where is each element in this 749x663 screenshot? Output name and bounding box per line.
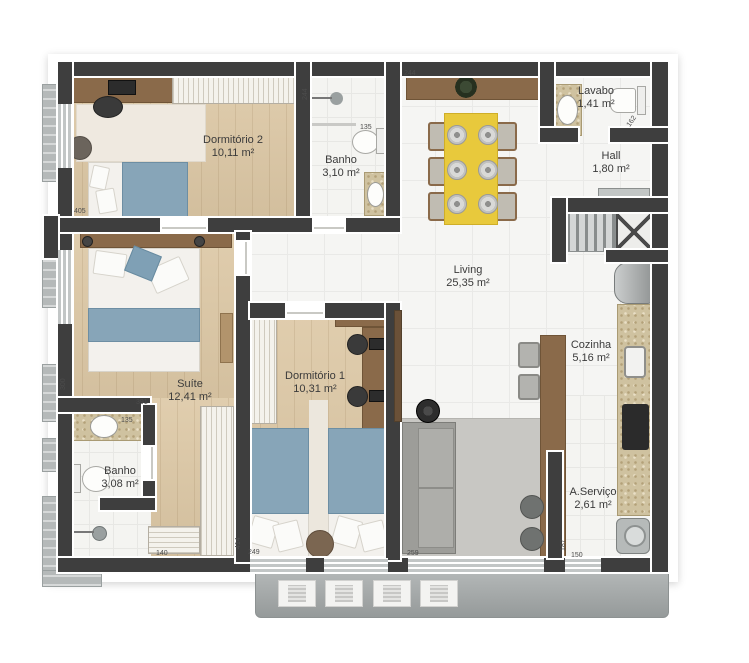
window-segment (408, 558, 544, 572)
pillow-icon (92, 250, 127, 278)
door-opening (236, 240, 250, 276)
bar-stool-icon (518, 374, 540, 400)
desk-chair-icon (93, 96, 123, 118)
wall-segment (100, 498, 155, 510)
plant-icon (455, 76, 477, 98)
balcony-window-icon (373, 580, 411, 607)
room-name: Dormitório 2 (203, 134, 263, 147)
dimension-label: 249 (248, 549, 260, 556)
dimension-label: 414 (235, 537, 242, 549)
side-table-icon (416, 399, 440, 423)
dimension-label: 244 (404, 70, 416, 77)
plate-icon (478, 194, 498, 214)
window-segment (250, 558, 306, 572)
bed-dorm1-right-blanket (328, 428, 394, 514)
dresser-suite (220, 313, 233, 363)
room-name: Suíte (168, 378, 211, 391)
room-area: 3,08 m² (101, 478, 138, 491)
kitchen-sink-icon (624, 346, 646, 378)
plate-icon (447, 194, 467, 214)
room-label-aservico: A.Serviço 2,61 m² (569, 486, 616, 512)
computer-icon (369, 338, 386, 350)
balcony-window-icon (278, 580, 316, 607)
bar-stool-icon (518, 342, 540, 368)
wall-segment (606, 250, 668, 262)
lamp-icon (194, 236, 205, 247)
closet-suite (200, 406, 234, 556)
window-segment (324, 558, 388, 572)
balcony-window-icon (420, 580, 458, 607)
dimension-label: 405 (74, 208, 86, 215)
room-area: 2,61 m² (569, 499, 616, 512)
sink-icon (557, 95, 578, 125)
dimension-label: 135 (360, 124, 372, 131)
room-label-lavabo: Lavabo 1,41 m² (577, 85, 614, 111)
entry-door-icon (598, 188, 650, 197)
headboard-suite (80, 232, 232, 248)
bed-dorm1-left-blanket (245, 428, 309, 514)
bed-suite-blanket (88, 308, 200, 342)
wall-segment (58, 218, 400, 232)
pillow-icon (95, 188, 118, 215)
computer-icon (369, 390, 386, 402)
elevator-shaft-icon (616, 212, 652, 252)
room-area: 25,35 m² (446, 277, 489, 290)
dimension-label: 300 (60, 378, 67, 390)
stool-icon (520, 527, 544, 551)
door-leaf (287, 312, 323, 314)
room-area: 10,11 m² (203, 147, 263, 160)
wall-segment (552, 198, 668, 212)
plate-icon (478, 125, 498, 145)
window-segment (58, 250, 72, 324)
computer-icon (108, 80, 136, 95)
room-label-banho-social: Banho 3,10 m² (322, 154, 359, 180)
room-label-banho-suite: Banho 3,08 m² (101, 465, 138, 491)
door-leaf (314, 227, 344, 229)
door-opening (312, 218, 346, 232)
room-label-hall: Hall 1,80 m² (592, 150, 629, 176)
door-leaf (245, 242, 247, 274)
tv-panel-icon (394, 310, 402, 422)
window-segment (565, 558, 601, 572)
room-area: 1,80 m² (592, 163, 629, 176)
room-name: A.Serviço (569, 486, 616, 499)
round-rug-icon (306, 530, 334, 558)
exterior-wall-stub (42, 570, 102, 587)
room-name: Cozinha (571, 339, 611, 352)
dimension-label: 150 (571, 552, 583, 559)
sink-icon (367, 182, 384, 207)
room-area: 1,41 m² (577, 98, 614, 111)
room-name: Banho (322, 154, 359, 167)
shower-arm (311, 97, 332, 99)
dimension-label: 391 (136, 399, 148, 406)
room-area: 3,10 m² (322, 167, 359, 180)
wall-segment (236, 232, 250, 562)
lamp-icon (82, 236, 93, 247)
room-name: Dormitório 1 (285, 370, 345, 383)
room-area: 5,16 m² (571, 352, 611, 365)
wall-pier (44, 216, 58, 258)
shower-arm (74, 531, 94, 533)
room-label-dormitorio-2: Dormitório 2 10,11 m² (203, 134, 263, 160)
washer-door-icon (624, 525, 646, 547)
dimension-label: 140 (156, 550, 168, 557)
wall-segment (386, 62, 400, 225)
stairs-icon (566, 212, 616, 252)
room-label-cozinha: Cozinha 5,16 m² (571, 339, 611, 365)
door-opening (160, 218, 208, 232)
desk-chair-icon (347, 386, 368, 407)
sofa-cushion-line (418, 487, 454, 489)
desk-chair-icon (347, 334, 368, 355)
room-area: 10,31 m² (285, 383, 345, 396)
toilet-tank (72, 464, 81, 493)
window-segment (58, 104, 72, 168)
room-label-living: Living 25,35 m² (446, 264, 489, 290)
plate-icon (447, 125, 467, 145)
shower-head-icon (92, 526, 107, 541)
room-label-suite: Suíte 12,41 m² (168, 378, 211, 404)
wall-segment (58, 62, 668, 76)
cooktop-icon (622, 404, 649, 450)
balcony-ledge (255, 572, 669, 618)
door-leaf (151, 447, 153, 479)
door-opening (285, 303, 325, 318)
plate-icon (447, 160, 467, 180)
dimension-label: 135 (121, 417, 133, 424)
fridge-icon (614, 262, 652, 304)
toilet-icon (352, 130, 379, 154)
sink-icon (90, 415, 118, 438)
dimension-label: 244 (302, 88, 309, 100)
wall-segment (540, 128, 578, 142)
dimension-label: 259 (407, 550, 419, 557)
room-area: 12,41 m² (168, 391, 211, 404)
dimension-label: 187 (560, 539, 567, 551)
room-name: Hall (592, 150, 629, 163)
wardrobe-dorm2 (172, 76, 296, 104)
wall-segment (610, 128, 668, 142)
toilet-tank (637, 86, 646, 115)
room-name: Banho (101, 465, 138, 478)
shower-divider (310, 123, 356, 126)
floor-plan: Dormitório 2 10,11 m² Banho 3,10 m² Lava… (0, 0, 749, 663)
room-name: Lavabo (577, 85, 614, 98)
stool-icon (520, 495, 544, 519)
plate-icon (478, 160, 498, 180)
wall-segment (552, 198, 566, 262)
door-opening (143, 445, 155, 481)
wall-segment (296, 62, 310, 225)
balcony-window-icon (325, 580, 363, 607)
bed-dorm2-blanket (122, 162, 188, 218)
room-name: Living (446, 264, 489, 277)
door-leaf (162, 227, 206, 229)
room-label-dormitorio-1: Dormitório 1 10,31 m² (285, 370, 345, 396)
toilet-tank (376, 128, 385, 154)
